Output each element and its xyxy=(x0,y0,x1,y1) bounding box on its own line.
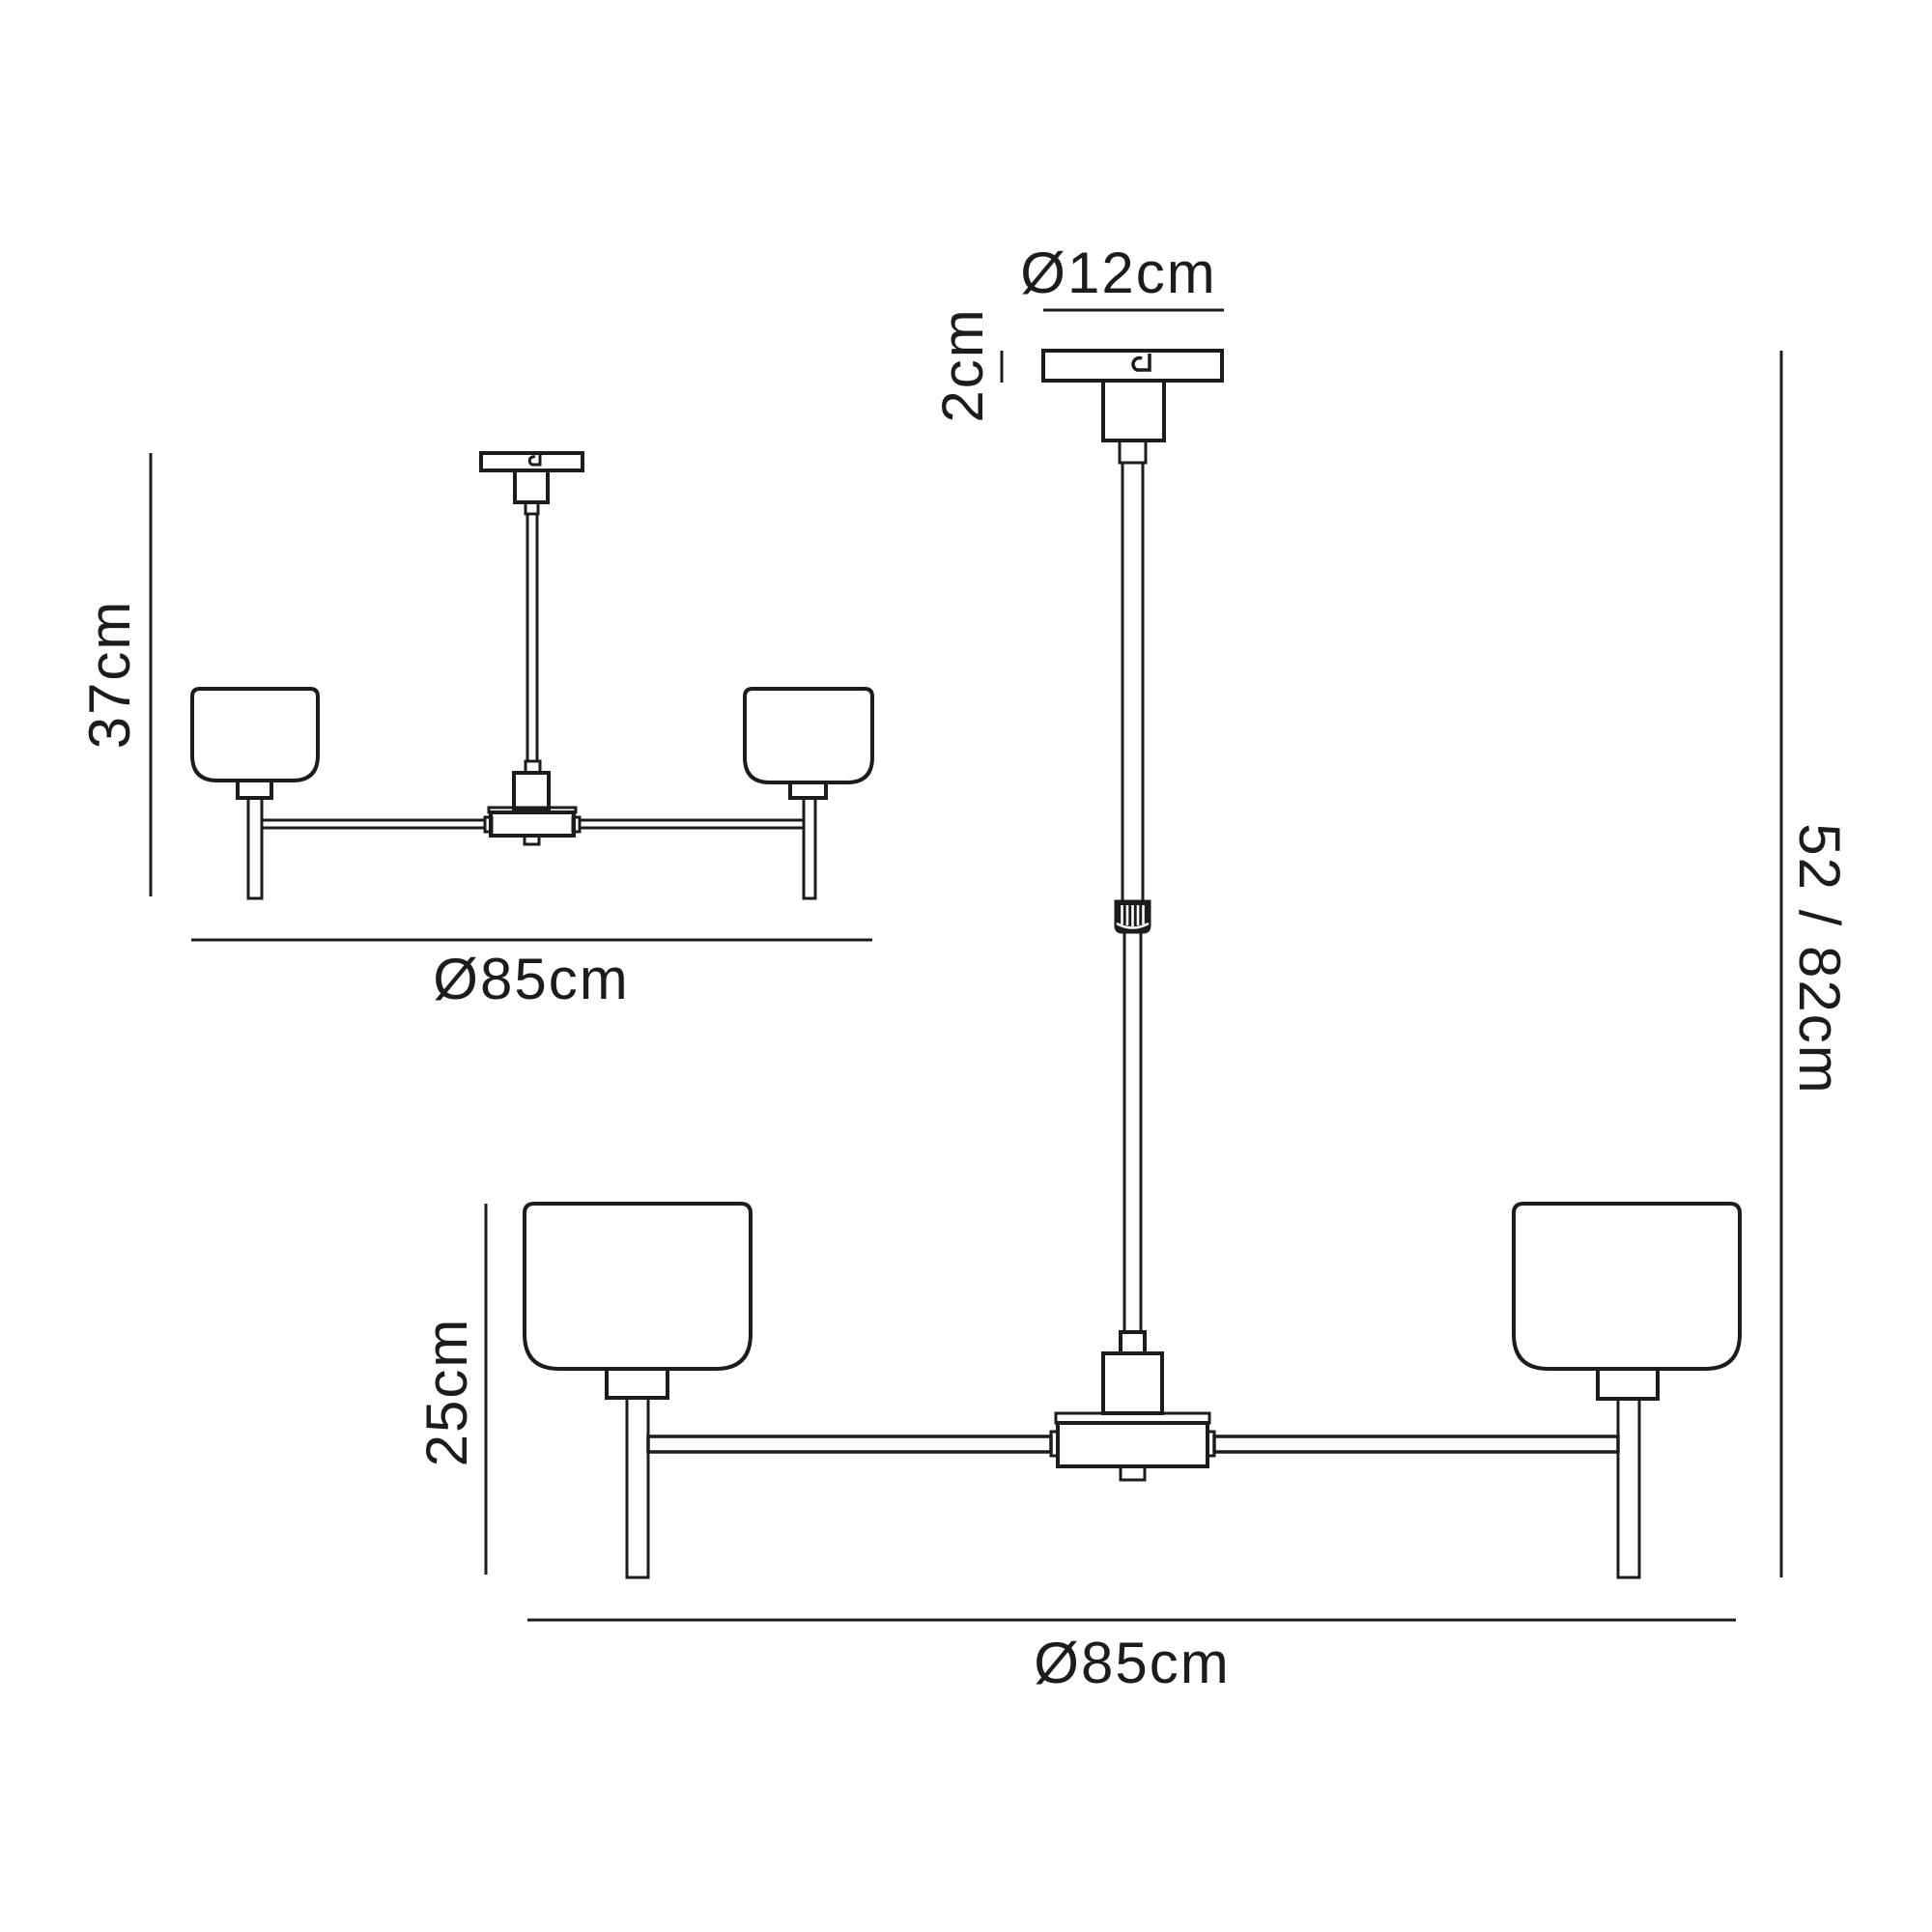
left-stem xyxy=(627,1398,648,1577)
small-left-shade xyxy=(192,689,318,781)
right-arm xyxy=(1214,1436,1618,1452)
upper-neck xyxy=(1120,440,1146,463)
small-hub-body xyxy=(491,812,574,836)
dim-label-small-diameter: Ø85cm xyxy=(433,951,629,1009)
left-shade xyxy=(525,1204,751,1369)
hub-body xyxy=(1058,1423,1207,1466)
small-canopy-holder xyxy=(515,470,548,502)
canopy-holder xyxy=(1103,381,1164,440)
small-canopy-hook-icon xyxy=(529,454,540,465)
small-left-lampholder xyxy=(238,781,271,798)
dimension-diagram: 37cm Ø85cm Ø12cm 2cm 25cm Ø85cm 52 / 82c… xyxy=(0,0,1932,1932)
line-drawing xyxy=(0,0,1932,1932)
dim-label-large-diameter: Ø85cm xyxy=(1034,1634,1230,1692)
small-right-lampholder xyxy=(790,782,826,798)
dim-label-shade-height: 25cm xyxy=(418,1318,476,1467)
canopy-hook-icon xyxy=(1133,354,1150,370)
small-left-stem xyxy=(248,798,262,898)
left-arm xyxy=(648,1436,1051,1452)
lower-rod xyxy=(1124,932,1141,1332)
right-stem xyxy=(1618,1399,1639,1577)
right-lampholder xyxy=(1598,1369,1658,1399)
small-right-arm xyxy=(580,820,804,828)
dim-label-drop-height: 52 / 82cm xyxy=(1790,823,1848,1094)
small-hub-tab xyxy=(525,836,539,844)
hub-block xyxy=(1103,1353,1162,1413)
small-right-shade xyxy=(745,689,872,782)
small-hub-block xyxy=(514,773,549,809)
hub-tab xyxy=(1121,1466,1145,1480)
small-left-arm xyxy=(262,820,485,828)
dim-label-canopy-diameter: Ø12cm xyxy=(1020,244,1216,302)
small-right-stem xyxy=(804,798,815,898)
hub-neck xyxy=(1121,1332,1145,1353)
large-front-view xyxy=(486,310,1781,1620)
upper-rod xyxy=(1122,463,1143,901)
dim-label-small-height: 37cm xyxy=(81,600,139,750)
left-lampholder xyxy=(607,1369,668,1398)
small-rod xyxy=(527,514,537,761)
right-shade xyxy=(1514,1204,1740,1369)
dim-label-canopy-height: 2cm xyxy=(934,307,992,422)
small-side-view xyxy=(151,453,872,940)
